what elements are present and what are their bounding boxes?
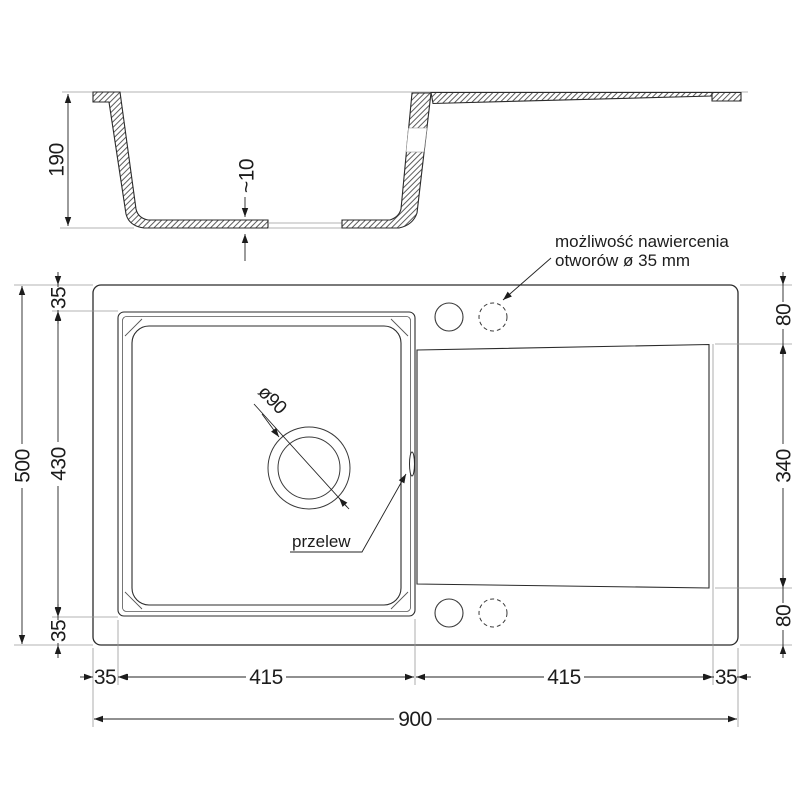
drainboard-edge-section xyxy=(712,93,741,102)
dim-bottom-total: 900 xyxy=(398,708,432,731)
plan-view: ø90 przelew możliwość nawiercenia otworó… xyxy=(11,232,795,731)
dim-bottom-margin-left: 35 xyxy=(94,666,116,689)
overflow-break-section xyxy=(406,128,427,152)
dim-bottom-bowl: 415 xyxy=(249,666,283,689)
overflow-callout: przelew xyxy=(290,452,415,552)
dims-right: 340 80 80 xyxy=(715,272,795,658)
dim-left-bowl: 430 xyxy=(47,447,70,481)
faucet-holes xyxy=(435,303,507,627)
drain-diameter-label: ø90 xyxy=(253,382,290,419)
sink-technical-drawing: 190 ~10 xyxy=(0,0,800,800)
drainboard-panel xyxy=(417,345,709,589)
tap-hole-bottom xyxy=(435,599,463,627)
drill-note: możliwość nawiercenia otworów ø 35 mm xyxy=(503,232,729,300)
bowl-bottom-recess-section xyxy=(268,223,342,228)
drawing-canvas: 190 ~10 xyxy=(0,0,800,800)
dim-right-top: 80 xyxy=(772,304,795,326)
drill-note-line1: możliwość nawiercenia xyxy=(555,232,729,251)
dim-right-mid: 340 xyxy=(772,449,795,483)
dim-left-margin-bottom: 35 xyxy=(47,620,70,642)
dims-bottom: 415 415 35 35 900 xyxy=(80,619,751,731)
overflow-slot xyxy=(410,452,415,476)
dim-left-total: 500 xyxy=(11,449,34,483)
bowl-corner-chamfers xyxy=(125,319,408,609)
optional-tap-hole-top xyxy=(479,303,507,331)
bowl-right-wall-section xyxy=(342,93,431,228)
tap-hole-top xyxy=(435,303,463,331)
dim-left-margin-top: 35 xyxy=(47,287,70,309)
dim-right-bottom: 80 xyxy=(772,605,795,627)
bowl-inner-edge xyxy=(132,326,401,605)
dim-bottom-drainer: 415 xyxy=(547,666,581,689)
overflow-label: przelew xyxy=(292,532,351,551)
drain-hole: ø90 xyxy=(253,382,350,509)
optional-tap-hole-bottom xyxy=(479,599,507,627)
dim-bottom-margin-right: 35 xyxy=(715,666,737,689)
dim-base-thickness: ~10 xyxy=(235,159,258,261)
drill-note-line2: otworów ø 35 mm xyxy=(555,251,690,270)
depth-label: 190 xyxy=(45,143,68,177)
drainboard-section xyxy=(431,93,712,104)
bowl-rim xyxy=(118,312,415,616)
base-thickness-label: ~10 xyxy=(235,159,258,193)
dims-left: 500 430 35 35 xyxy=(11,272,118,658)
